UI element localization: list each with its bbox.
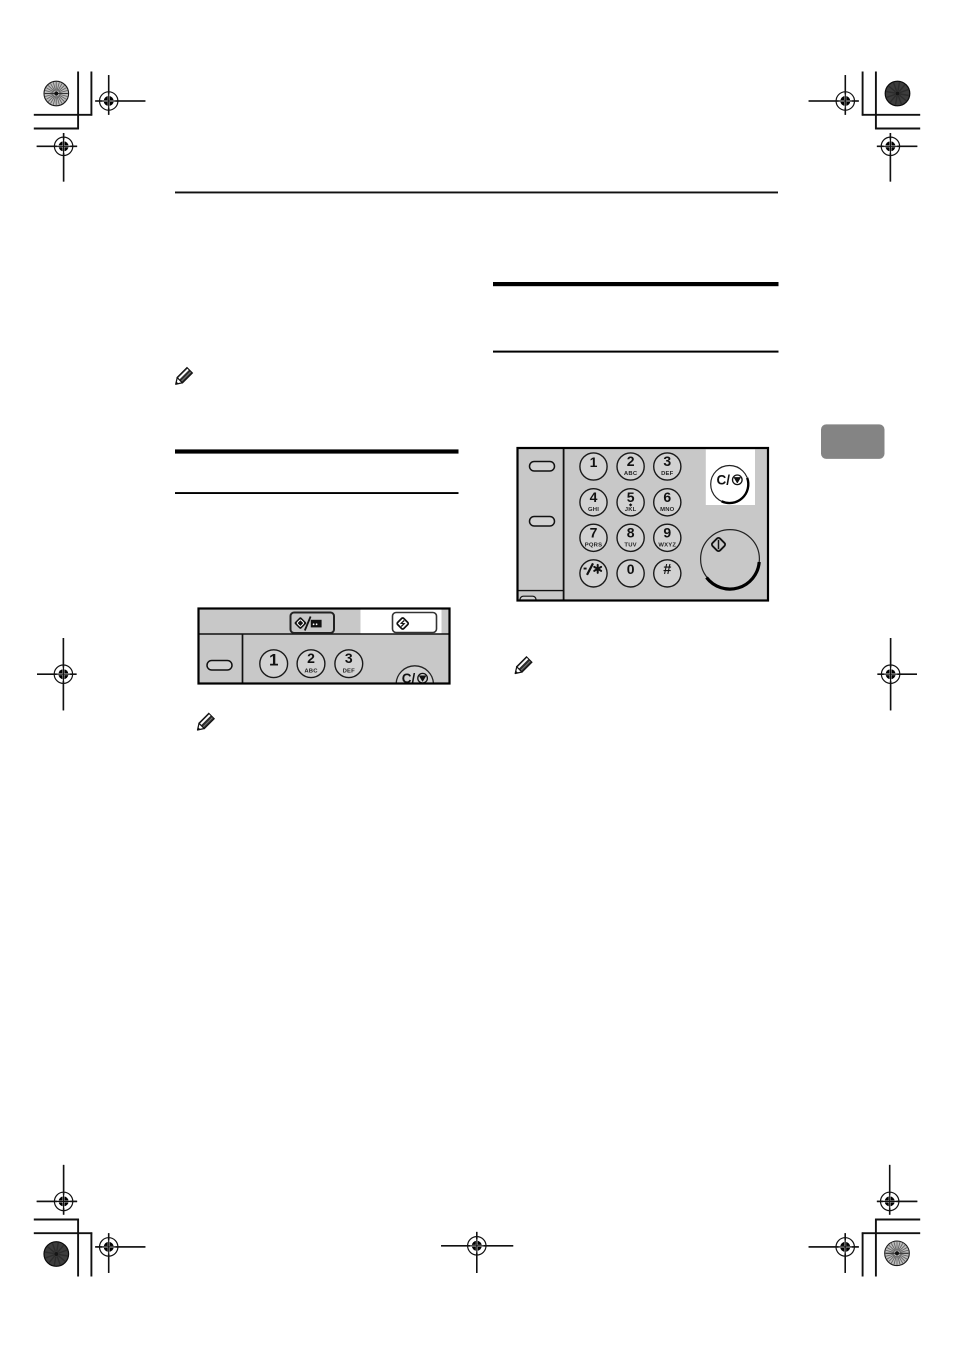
svg-text:#: #: [663, 562, 671, 578]
svg-text:DEF: DEF: [661, 471, 674, 477]
svg-text:1: 1: [590, 454, 598, 470]
svg-text:2: 2: [627, 453, 635, 469]
svg-text:5: 5: [627, 489, 635, 505]
svg-text:PQRS: PQRS: [585, 542, 603, 548]
svg-text:TUV: TUV: [624, 542, 636, 548]
svg-text:2: 2: [307, 650, 315, 666]
svg-text:GHI: GHI: [588, 507, 599, 513]
svg-text:MNO: MNO: [660, 507, 675, 513]
svg-text:9: 9: [663, 524, 671, 540]
svg-text:JKL: JKL: [625, 507, 637, 513]
svg-text:1: 1: [269, 651, 278, 670]
svg-text:4: 4: [590, 489, 598, 505]
svg-text:C/: C/: [717, 472, 731, 487]
svg-text:8: 8: [627, 524, 635, 540]
svg-text:0: 0: [627, 561, 635, 577]
svg-text:DEF: DEF: [343, 668, 356, 674]
svg-text:3: 3: [663, 453, 671, 469]
svg-text:6: 6: [663, 489, 671, 505]
svg-text:WXYZ: WXYZ: [658, 542, 676, 548]
svg-text:ABC: ABC: [624, 471, 638, 477]
svg-text:3: 3: [345, 650, 353, 666]
svg-text:7: 7: [590, 524, 598, 540]
svg-text:ABC: ABC: [304, 668, 318, 674]
